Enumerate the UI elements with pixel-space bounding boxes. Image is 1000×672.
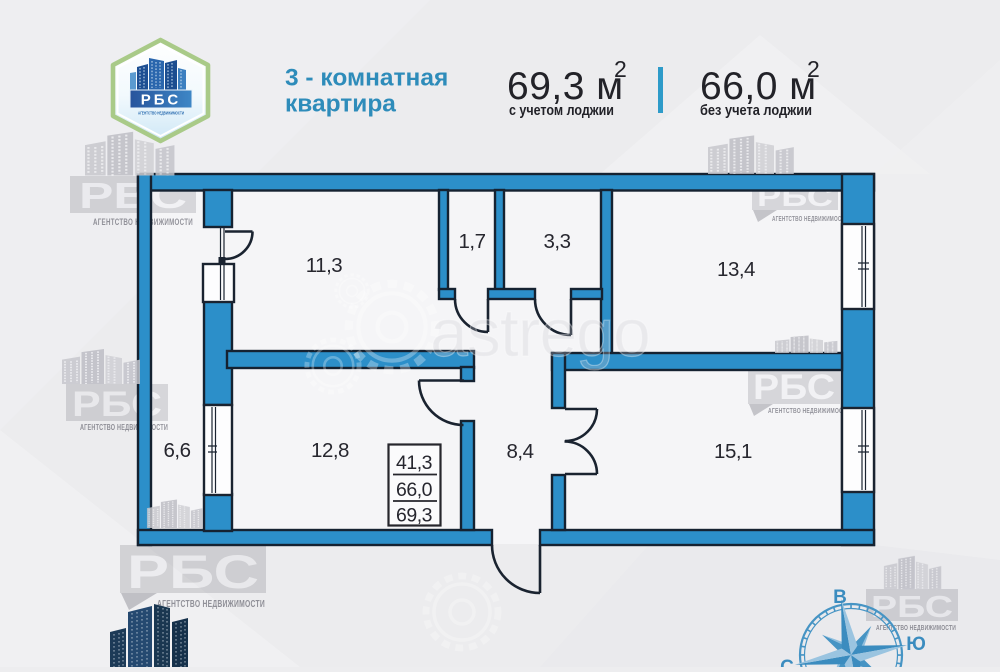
svg-text:69,3: 69,3 [396,505,432,527]
svg-text:6,6: 6,6 [164,439,191,462]
svg-text:С: С [780,657,794,667]
svg-text:41,3: 41,3 [396,452,432,474]
svg-text:В: В [833,587,847,608]
svg-text:АГЕНТСТВО НЕДВИЖИМОСТИ: АГЕНТСТВО НЕДВИЖИМОСТИ [138,111,184,116]
svg-text:astrego: astrego [430,295,650,371]
svg-text:с учетом лоджии: с учетом лоджии [509,103,614,119]
svg-text:АГЕНТСТВО НЕДВИЖИМОСТИ: АГЕНТСТВО НЕДВИЖИМОСТИ [772,214,848,223]
svg-text:15,1: 15,1 [714,440,752,463]
svg-text:3,3: 3,3 [544,230,571,253]
svg-text:11,3: 11,3 [306,254,342,277]
svg-text:АГЕНТСТВО НЕДВИЖИМОСТИ: АГЕНТСТВО НЕДВИЖИМОСТИ [768,406,850,415]
svg-text:РБС: РБС [871,589,953,624]
svg-text:квартира: квартира [285,91,396,118]
svg-text:66,0: 66,0 [396,479,433,501]
svg-text:69,3 м: 69,3 м [507,65,624,108]
svg-text:2: 2 [807,56,820,82]
svg-text:АГЕНТСТВО НЕДВИЖИМОСТИ: АГЕНТСТВО НЕДВИЖИМОСТИ [80,423,168,432]
svg-text:13,4: 13,4 [717,258,755,281]
svg-text:2: 2 [614,56,627,82]
svg-text:РБС: РБС [753,368,835,407]
svg-text:8,4: 8,4 [507,440,534,463]
svg-text:3 - комнатная: 3 - комнатная [285,65,448,92]
svg-text:12,8: 12,8 [311,439,349,462]
svg-text:1,7: 1,7 [459,230,486,253]
svg-text:без учета лоджии: без учета лоджии [700,103,812,119]
svg-text:РБС: РБС [127,545,259,598]
svg-text:Ю: Ю [906,634,926,655]
svg-text:66,0 м: 66,0 м [700,65,817,108]
svg-text:РБС: РБС [141,92,181,109]
svg-text:АГЕНТСТВО НЕДВИЖИМОСТИ: АГЕНТСТВО НЕДВИЖИМОСТИ [157,598,265,610]
